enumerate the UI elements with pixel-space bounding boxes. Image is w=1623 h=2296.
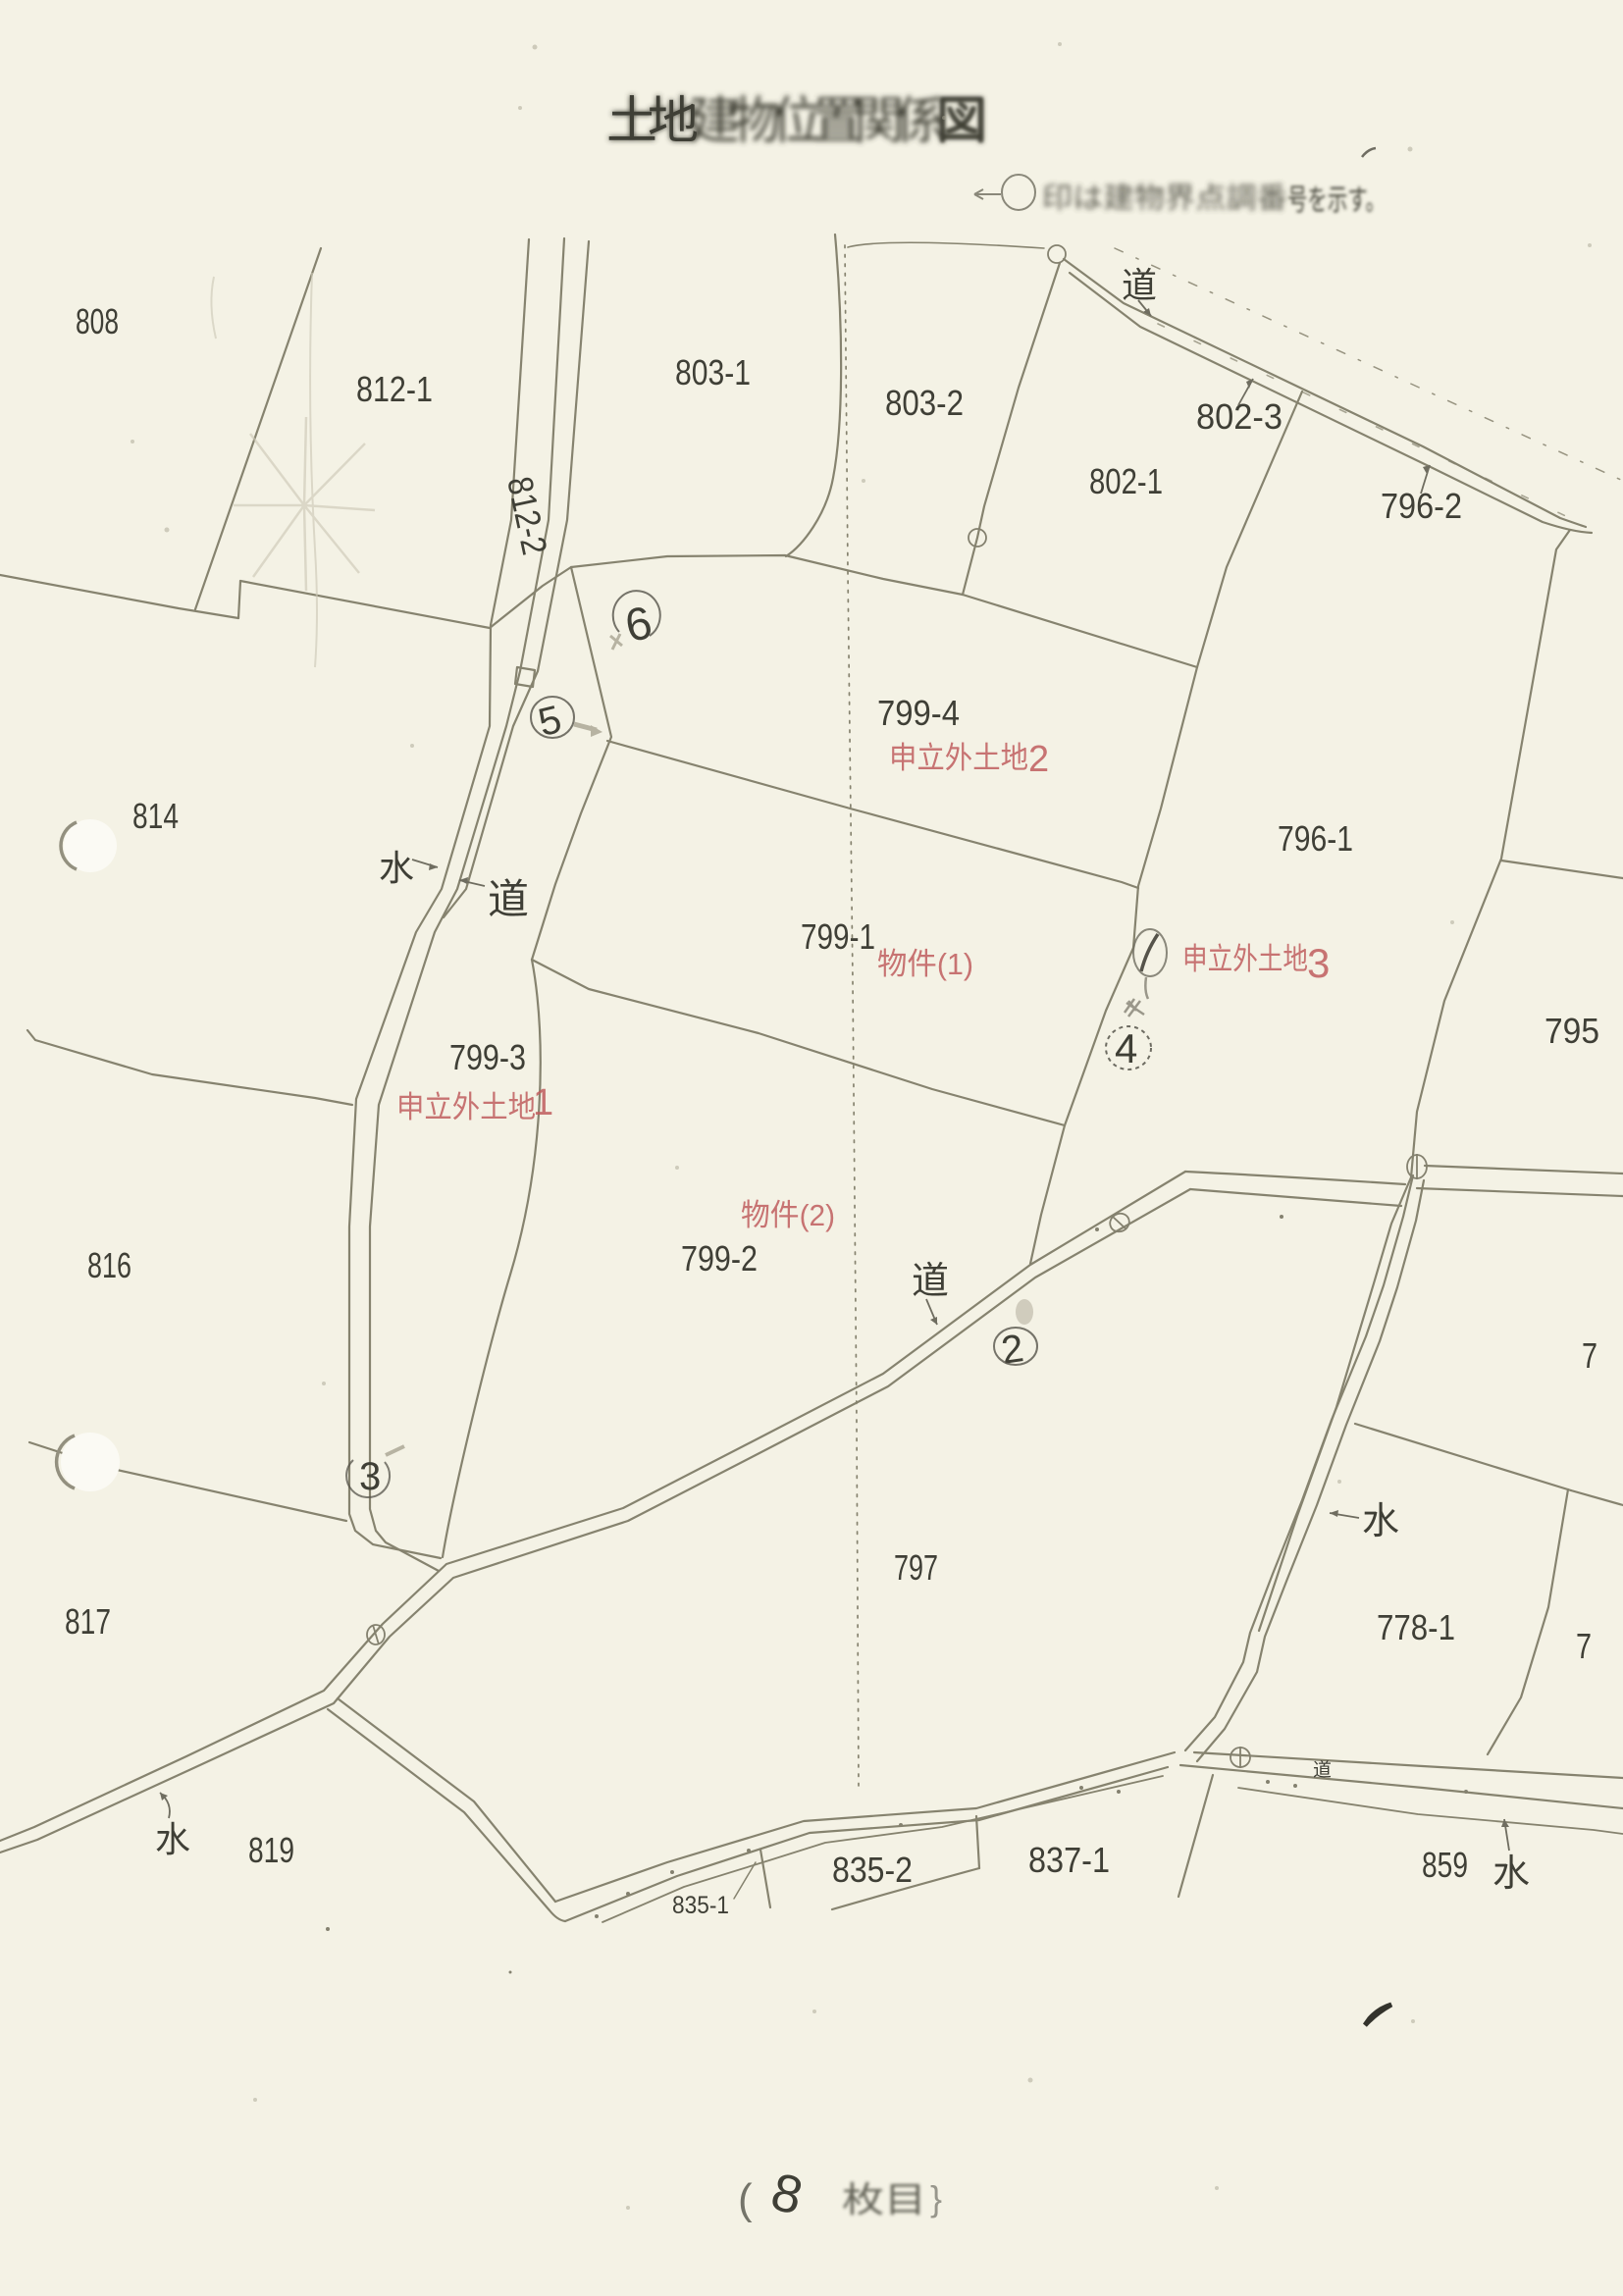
svg-text:3: 3 bbox=[359, 1455, 381, 1498]
svg-text:7: 7 bbox=[1576, 1626, 1592, 1666]
svg-text:2: 2 bbox=[1028, 739, 1049, 780]
svg-text:7: 7 bbox=[1582, 1335, 1597, 1376]
svg-text:817: 817 bbox=[65, 1601, 111, 1642]
svg-text:}: } bbox=[930, 2178, 942, 2218]
svg-text:799-2: 799-2 bbox=[681, 1238, 758, 1278]
svg-text:859: 859 bbox=[1422, 1845, 1468, 1885]
svg-text:778-1: 778-1 bbox=[1377, 1607, 1455, 1647]
svg-text:道: 道 bbox=[912, 1261, 949, 1302]
svg-text:803-2: 803-2 bbox=[885, 383, 964, 423]
svg-text:土地: 土地 bbox=[606, 93, 698, 150]
svg-text:835-1: 835-1 bbox=[672, 1892, 729, 1919]
svg-text:3: 3 bbox=[1307, 940, 1330, 986]
svg-text:印は建物界点調番: 印は建物界点調番 bbox=[1042, 183, 1287, 215]
svg-text:道: 道 bbox=[1313, 1759, 1332, 1781]
svg-text:水: 水 bbox=[379, 848, 414, 888]
svg-text:797: 797 bbox=[894, 1547, 938, 1588]
svg-text:水: 水 bbox=[1492, 1853, 1530, 1895]
svg-text:819: 819 bbox=[248, 1830, 294, 1870]
svg-text:803-1: 803-1 bbox=[675, 352, 751, 392]
svg-text:799-1: 799-1 bbox=[801, 916, 875, 957]
svg-text:837-1: 837-1 bbox=[1028, 1840, 1110, 1880]
svg-text:物件(2): 物件(2) bbox=[741, 1198, 835, 1232]
svg-text:道: 道 bbox=[1122, 265, 1157, 305]
svg-text:835-2: 835-2 bbox=[832, 1850, 913, 1890]
svg-text:799-3: 799-3 bbox=[449, 1037, 526, 1077]
svg-text:申立外土地: 申立外土地 bbox=[889, 741, 1028, 775]
svg-text:水: 水 bbox=[155, 1819, 190, 1859]
svg-text:812-1: 812-1 bbox=[356, 369, 433, 409]
svg-text:申立外土地: 申立外土地 bbox=[1182, 942, 1308, 976]
svg-text:枚目: 枚目 bbox=[842, 2179, 926, 2219]
svg-text:802-1: 802-1 bbox=[1089, 461, 1163, 501]
svg-text:1: 1 bbox=[533, 1082, 553, 1123]
svg-text:申立外土地: 申立外土地 bbox=[396, 1090, 536, 1124]
svg-text:水: 水 bbox=[1362, 1501, 1399, 1542]
svg-text:(: ( bbox=[738, 2175, 753, 2223]
svg-text:799-4: 799-4 bbox=[877, 693, 960, 733]
svg-text:物件(1): 物件(1) bbox=[877, 947, 973, 981]
svg-text:795: 795 bbox=[1544, 1011, 1599, 1051]
svg-text:808: 808 bbox=[76, 301, 119, 341]
svg-text:号を示す。: 号を示す。 bbox=[1287, 184, 1386, 217]
svg-text:814: 814 bbox=[132, 796, 179, 836]
svg-text:道: 道 bbox=[488, 876, 529, 922]
svg-text:796-1: 796-1 bbox=[1278, 818, 1353, 859]
svg-text:図: 図 bbox=[936, 93, 987, 150]
svg-text:4: 4 bbox=[1115, 1025, 1137, 1071]
svg-text:816: 816 bbox=[87, 1245, 131, 1285]
